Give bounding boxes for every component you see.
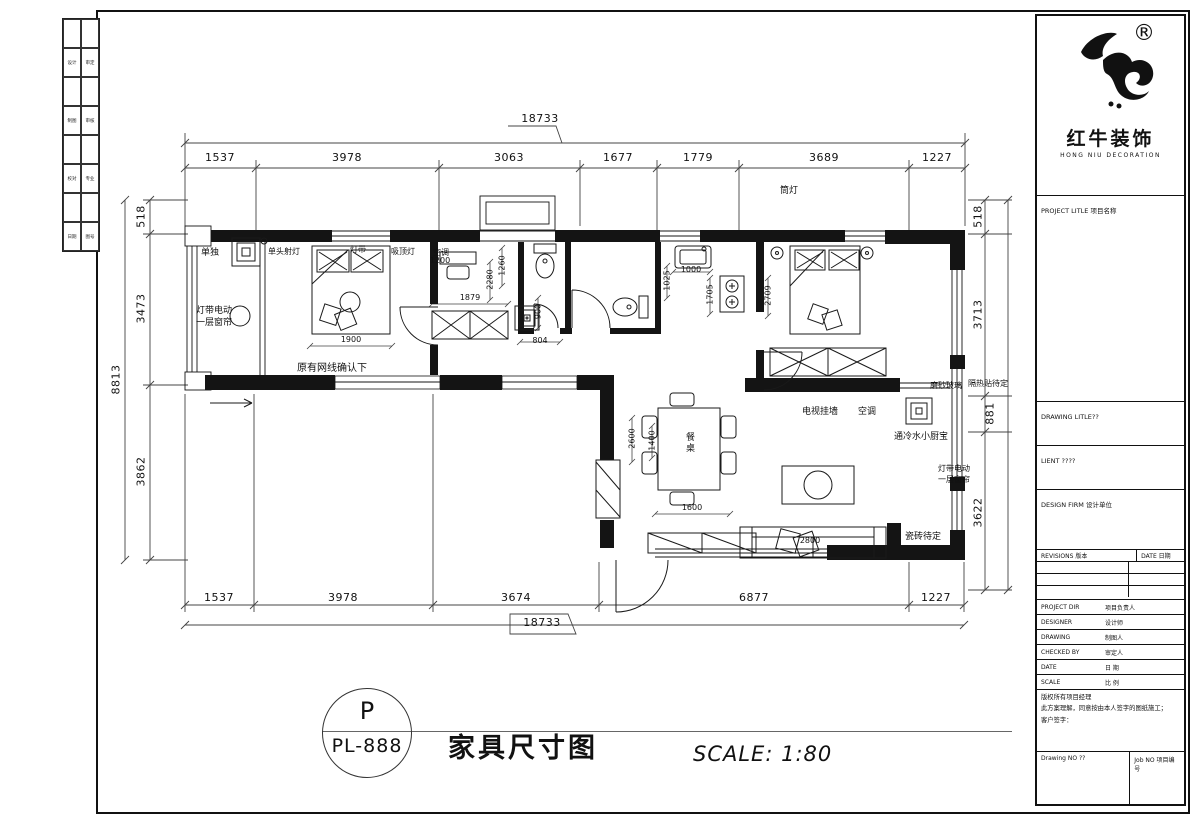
title-block: ® 红牛装饰 HONG NIU DECORATION PROJECT LITLE… <box>1035 14 1186 806</box>
sheet-scale: SCALE: 1:80 <box>693 742 832 766</box>
strip-cell <box>81 135 99 164</box>
strip-cell <box>81 19 99 48</box>
label-curtain2-b: 一层窗帘 <box>938 474 970 485</box>
signature-strip: 设计审定 制图审核 校对专业 日期图号 <box>62 18 100 252</box>
strip-cell <box>81 77 99 106</box>
label-curtain2-a: 灯带电动 <box>938 463 970 474</box>
logo-cn-name: 红牛装饰 <box>1066 124 1154 151</box>
revision-row <box>1037 562 1184 574</box>
drawing-title-label: DRAWING LITLE?? <box>1041 413 1099 421</box>
sheet-title: 家具尺寸图 <box>448 726 598 765</box>
dim-right-3: 3622 <box>972 488 985 538</box>
credit-en: DESIGNER <box>1041 619 1099 626</box>
client-signature-line: 客户签字： <box>1041 715 1180 726</box>
copyright-section: 版权所有项目经理 此方案理解，同意按由本人签字的图纸施工； 客户签字： <box>1037 690 1184 752</box>
revisions-date-col: DATE 日期 <box>1137 550 1175 561</box>
dim-bottom-4: 1227 <box>906 591 966 604</box>
dim-804: 804 <box>515 336 565 345</box>
dim-right-0: 518 <box>972 192 985 242</box>
dim-top-6: 1227 <box>907 151 967 164</box>
label-curtain-b: 一层窗帘 <box>196 315 232 328</box>
label-standalone: 单独 <box>201 245 219 258</box>
credit-cn: 日 期 <box>1105 663 1119 672</box>
credit-en: PROJECT DIR <box>1041 604 1099 611</box>
client-label: LIENT ???? <box>1041 457 1075 465</box>
number-section: Drawing NO ?? Job NO 项目编号 <box>1037 752 1184 804</box>
strip-cell: 日期 <box>63 222 81 251</box>
label-ceilinglight: 吸顶灯 <box>391 246 415 257</box>
dim-top-5: 3689 <box>794 151 854 164</box>
dim-right-1: 3713 <box>972 290 985 340</box>
dim-left-1: 3473 <box>135 284 148 334</box>
strip-cell <box>81 193 99 222</box>
project-title-section: PROJECT LITLE 项目名称 <box>1037 196 1184 402</box>
credit-cn: 制图人 <box>1105 633 1123 642</box>
dim-bottom-total: 18733 <box>512 616 572 629</box>
strip-cell: 审定 <box>81 48 99 77</box>
dim-1400: 1400 <box>648 416 657 466</box>
dim-1260: 1260 <box>498 241 507 291</box>
dim-1025: 1025 <box>663 256 672 306</box>
client-section: LIENT ???? <box>1037 446 1184 490</box>
copyright-line1: 版权所有项目经理 <box>1041 692 1180 703</box>
credit-en: DATE <box>1041 664 1099 671</box>
strip-cell: 专业 <box>81 164 99 193</box>
dim-left-2: 3862 <box>135 447 148 497</box>
dim-top-1: 3978 <box>317 151 377 164</box>
dim-bottom-0: 1537 <box>189 591 249 604</box>
label-tile: 瓷砖待定 <box>905 529 941 542</box>
dim-bed2: 2709 <box>764 271 773 321</box>
dim-900: 900 <box>534 287 543 337</box>
credits-rows: PROJECT DIR项目负责人 DESIGNER设计师 DRAWING制图人 … <box>1037 600 1184 690</box>
dim-top-4: 1779 <box>668 151 728 164</box>
label-insulation: 隔热贴待定 <box>968 378 1008 389</box>
dim-bottom-3: 6877 <box>724 591 784 604</box>
strip-cell: 校对 <box>63 164 81 193</box>
strip-cell <box>63 193 81 222</box>
walls <box>205 230 965 560</box>
drawing-title-section: DRAWING LITLE?? <box>1037 402 1184 446</box>
revisions-col: REVISIONS 版本 <box>1037 550 1137 561</box>
project-title-label: PROJECT LITLE 项目名称 <box>1041 207 1116 215</box>
dim-2280: 2280 <box>486 255 495 305</box>
dim-top-2: 3063 <box>479 151 539 164</box>
dim-tv: 1600 <box>662 503 722 512</box>
credit-cn: 审定人 <box>1105 648 1123 657</box>
strip-cell <box>63 19 81 48</box>
dim-left-total: 8813 <box>110 355 123 405</box>
revision-row <box>1037 586 1184 597</box>
floorplan-drawing <box>110 100 1020 670</box>
label-frosted: 磨砂玻璃 <box>930 380 962 391</box>
dim-top-total: 18733 <box>505 112 575 125</box>
sheet-number-bubble: P PL-888 <box>322 688 412 778</box>
dim-bottom-2: 3674 <box>486 591 546 604</box>
label-heater: 通冷水小厨宝 <box>894 429 948 442</box>
label-downlight: 筒灯 <box>780 183 798 196</box>
dim-top-3: 1677 <box>588 151 648 164</box>
dim-1705: 1705 <box>706 270 715 320</box>
label-lightstrip: 灯带 <box>350 244 366 255</box>
credit-en: SCALE <box>1041 679 1099 686</box>
registered-mark: ® <box>1133 21 1155 46</box>
revisions-table: REVISIONS 版本 DATE 日期 <box>1037 550 1184 600</box>
label-ac1: 空调 <box>433 247 449 258</box>
label-tvwall: 电视挂墙 <box>802 404 838 417</box>
strip-cell: 设计 <box>63 48 81 77</box>
design-firm-label: DESIGN FIRM 设计单位 <box>1041 501 1112 509</box>
dim-right-2: 881 <box>984 389 997 439</box>
dim-left-0: 518 <box>135 192 148 242</box>
label-spotlight: 单头射灯 <box>268 246 300 257</box>
credit-en: CHECKED BY <box>1041 649 1099 656</box>
copyright-line2: 此方案理解，同意按由本人签字的图纸施工； <box>1041 703 1180 714</box>
strip-cell: 制图 <box>63 106 81 135</box>
sheet-title-rule <box>322 731 1012 732</box>
credit-en: DRAWING <box>1041 634 1099 641</box>
design-firm-section: DESIGN FIRM 设计单位 <box>1037 490 1184 550</box>
dim-bottom-1: 3978 <box>313 591 373 604</box>
dim-top-0: 1537 <box>190 151 250 164</box>
label-dining-table: 餐桌 <box>683 432 696 454</box>
dim-bed1: 1900 <box>321 335 381 344</box>
drawing-no-label: Drawing NO ?? <box>1037 752 1130 804</box>
strip-cell <box>63 77 81 106</box>
credit-cn: 设计师 <box>1105 618 1123 627</box>
credit-cn: 比 例 <box>1105 678 1119 687</box>
dim-sofa: 2800 <box>780 536 840 545</box>
revision-row <box>1037 574 1184 586</box>
strip-cell: 图号 <box>81 222 99 251</box>
dim-2600: 2600 <box>628 414 637 464</box>
label-network: 原有网线确认下 <box>297 359 367 374</box>
credit-cn: 项目负责人 <box>1105 603 1135 612</box>
hongniu-bull-logo: ® <box>1059 18 1163 122</box>
job-no-label: Job NO 项目编号 <box>1130 752 1184 804</box>
label-ac2: 空调 <box>858 404 876 417</box>
logo-en-name: HONG NIU DECORATION <box>1060 152 1161 159</box>
strip-cell <box>63 135 81 164</box>
sheet-phase: P <box>323 697 411 725</box>
strip-cell: 审核 <box>81 106 99 135</box>
logo-section: ® 红牛装饰 HONG NIU DECORATION <box>1037 16 1184 196</box>
sheet-number: PL-888 <box>323 735 411 757</box>
